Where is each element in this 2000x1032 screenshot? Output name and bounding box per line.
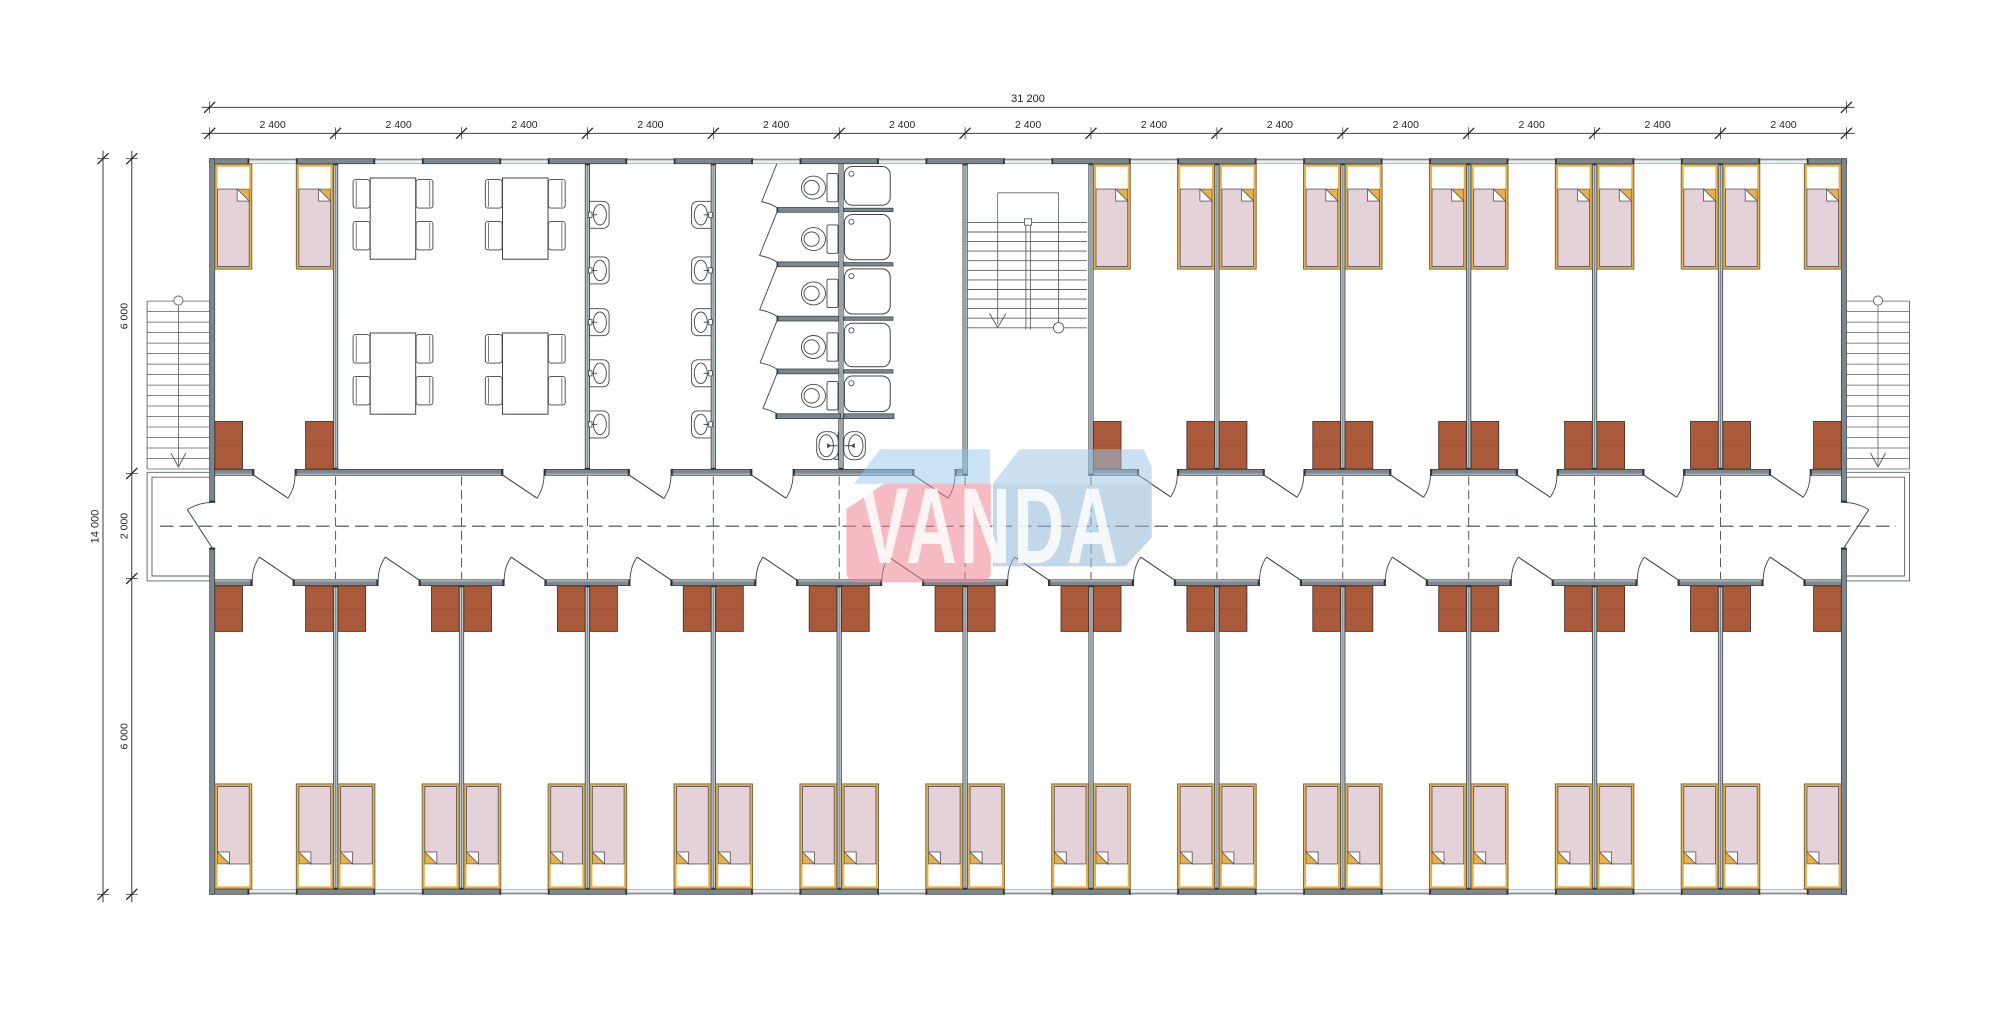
svg-text:2 400: 2 400 [385, 119, 411, 131]
svg-text:14 000: 14 000 [90, 510, 102, 544]
svg-text:2 400: 2 400 [763, 119, 789, 131]
svg-text:6 000: 6 000 [118, 723, 130, 749]
svg-text:2 400: 2 400 [1141, 119, 1167, 131]
svg-text:2 400: 2 400 [1770, 119, 1796, 131]
svg-text:31 200: 31 200 [1011, 93, 1045, 105]
svg-text:2 000: 2 000 [118, 513, 130, 539]
svg-text:2 400: 2 400 [889, 119, 915, 131]
svg-text:2 400: 2 400 [637, 119, 663, 131]
svg-text:2 400: 2 400 [1519, 119, 1545, 131]
svg-text:2 400: 2 400 [1015, 119, 1041, 131]
svg-text:VANDA: VANDA [861, 466, 1120, 587]
svg-text:2 400: 2 400 [1644, 119, 1670, 131]
svg-text:2 400: 2 400 [511, 119, 537, 131]
svg-text:2 400: 2 400 [1267, 119, 1293, 131]
svg-text:6 000: 6 000 [118, 303, 130, 329]
svg-text:2 400: 2 400 [1393, 119, 1419, 131]
svg-text:2 400: 2 400 [259, 119, 285, 131]
